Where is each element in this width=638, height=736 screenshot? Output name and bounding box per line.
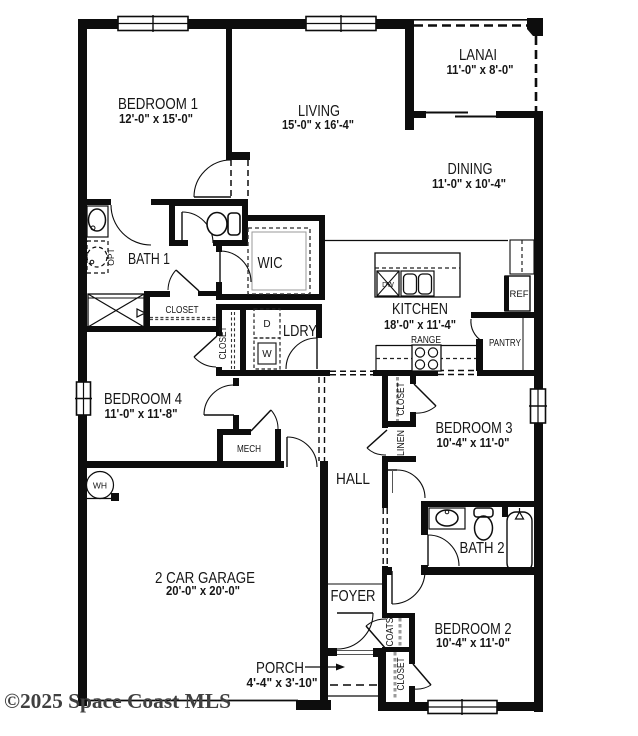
svg-text:OPT: OPT: [106, 248, 116, 265]
svg-text:FOYER: FOYER: [331, 588, 376, 605]
svg-text:11'-0" x 11'-8": 11'-0" x 11'-8": [105, 406, 178, 421]
svg-text:LDRY: LDRY: [283, 323, 317, 340]
svg-text:REF: REF: [510, 289, 530, 299]
svg-text:10'-4" x 11'-0": 10'-4" x 11'-0": [437, 435, 510, 450]
svg-text:CLOSET: CLOSET: [396, 383, 407, 416]
svg-text:10'-4" x 11'-0": 10'-4" x 11'-0": [436, 635, 510, 650]
svg-text:PANTRY: PANTRY: [489, 338, 521, 349]
svg-text:©2025 Space Coast MLS: ©2025 Space Coast MLS: [4, 689, 231, 713]
svg-text:20'-0" x 20'-0": 20'-0" x 20'-0": [166, 583, 240, 598]
svg-text:WH: WH: [93, 481, 107, 491]
svg-text:11'-0" x 10'-4": 11'-0" x 10'-4": [432, 176, 506, 191]
svg-text:BATH 1: BATH 1: [128, 251, 170, 268]
svg-text:CLOSET: CLOSET: [166, 305, 199, 316]
svg-text:COATS: COATS: [385, 617, 396, 646]
svg-text:CLOSET: CLOSET: [396, 658, 407, 691]
svg-text:KITCHEN: KITCHEN: [392, 301, 448, 318]
svg-text:MECH: MECH: [237, 444, 261, 455]
svg-text:18'-0" x 11'-4": 18'-0" x 11'-4": [384, 317, 456, 332]
svg-text:DW: DW: [382, 282, 394, 289]
svg-text:12'-0" x 15'-0": 12'-0" x 15'-0": [119, 111, 193, 126]
svg-text:WIC: WIC: [258, 255, 283, 272]
svg-text:CLOSET: CLOSET: [218, 327, 229, 360]
svg-text:HALL: HALL: [336, 471, 370, 488]
svg-text:4'-4" x 3'-10": 4'-4" x 3'-10": [247, 675, 318, 690]
svg-text:11'-0" x 8'-0": 11'-0" x 8'-0": [447, 62, 514, 77]
svg-text:LINEN: LINEN: [396, 430, 407, 456]
svg-text:RANGE: RANGE: [411, 335, 441, 346]
svg-text:15'-0" x 16'-4": 15'-0" x 16'-4": [282, 117, 354, 132]
svg-text:W: W: [262, 349, 272, 360]
svg-text:BATH 2: BATH 2: [460, 540, 505, 557]
svg-text:D: D: [263, 319, 270, 330]
